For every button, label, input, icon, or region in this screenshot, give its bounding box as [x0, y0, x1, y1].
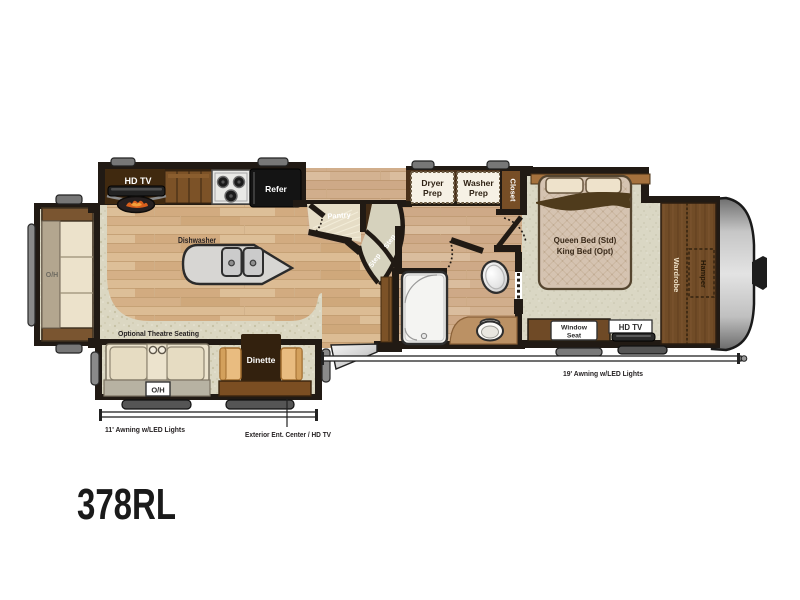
svg-text:378RL: 378RL: [77, 480, 176, 529]
svg-text:Queen Bed (Std): Queen Bed (Std): [554, 236, 617, 245]
svg-text:Pantry: Pantry: [327, 210, 352, 221]
svg-text:Seat: Seat: [567, 333, 582, 340]
svg-text:King Bed (Opt): King Bed (Opt): [557, 247, 614, 256]
svg-text:HD TV: HD TV: [125, 176, 152, 186]
svg-text:Window: Window: [561, 325, 588, 332]
svg-text:Dishwasher: Dishwasher: [178, 236, 216, 245]
svg-text:Exterior Ent. Center / HD TV: Exterior Ent. Center / HD TV: [245, 430, 331, 439]
svg-text:Dinette: Dinette: [247, 355, 276, 365]
svg-text:HD TV: HD TV: [619, 323, 643, 332]
svg-text:O/H: O/H: [46, 272, 58, 279]
svg-text:Wardrobe: Wardrobe: [672, 258, 681, 293]
svg-text:Optional Theatre Seating: Optional Theatre Seating: [118, 329, 199, 338]
svg-text:O/H: O/H: [151, 386, 164, 395]
svg-text:Refer: Refer: [265, 184, 287, 194]
svg-text:19' Awning w/LED Lights: 19' Awning w/LED Lights: [563, 369, 643, 378]
svg-text:Closet: Closet: [509, 179, 518, 202]
svg-text:Dryer: Dryer: [421, 178, 444, 188]
svg-text:Hamper: Hamper: [699, 260, 708, 288]
svg-text:Prep: Prep: [469, 188, 488, 198]
svg-text:11' Awning w/LED Lights: 11' Awning w/LED Lights: [105, 425, 185, 434]
svg-text:Prep: Prep: [423, 188, 442, 198]
svg-text:Washer: Washer: [463, 178, 494, 188]
